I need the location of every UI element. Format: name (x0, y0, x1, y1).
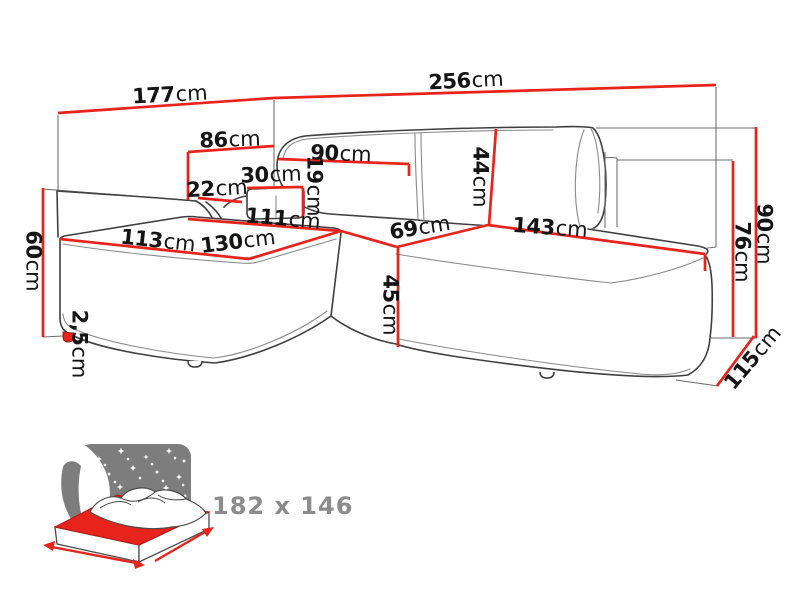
star-dot-icon (182, 484, 185, 487)
dim-label-d177: 177cm (132, 83, 208, 108)
dim-label-d143: 143cm (512, 215, 589, 241)
star-dot-icon (104, 464, 107, 467)
dim-label-d86: 86cm (199, 128, 261, 151)
dim-label-d60: 60cm (23, 230, 44, 291)
dim-label-d45: 45cm (380, 274, 401, 335)
furniture-dimension-diagram: 177cm256cm86cm90cm30cm22cm19cm111cm113cm… (0, 0, 800, 600)
dim-label-d44: 44cm (470, 146, 491, 207)
dim-label-d30: 30cm (240, 163, 302, 186)
star-dot-icon (151, 463, 154, 466)
dim-label-d22: 22cm (186, 177, 248, 201)
dim-label-d76: 76cm (732, 221, 753, 282)
dimension-line-d30 (247, 187, 303, 188)
dim-label-d90right: 90cm (754, 203, 775, 264)
dim-label-d256: 256cm (428, 69, 504, 94)
star-dot-icon (174, 457, 177, 460)
star-dot-icon (114, 481, 117, 484)
star-dot-icon (162, 480, 165, 483)
sofa-leg (188, 361, 202, 367)
dim-label-d19: 19cm (304, 155, 325, 216)
sofa-bed-sleeping-function-icon (0, 434, 214, 569)
sleeping-area-size-value: 182 x 146 (212, 492, 353, 520)
sofa-leg (540, 372, 554, 378)
dim-label-d25: 2,5cm (69, 310, 90, 379)
star-dot-icon (139, 477, 142, 480)
sleeping-area-size-label: 182 x 146 (212, 492, 353, 520)
star-dot-icon (127, 458, 130, 461)
